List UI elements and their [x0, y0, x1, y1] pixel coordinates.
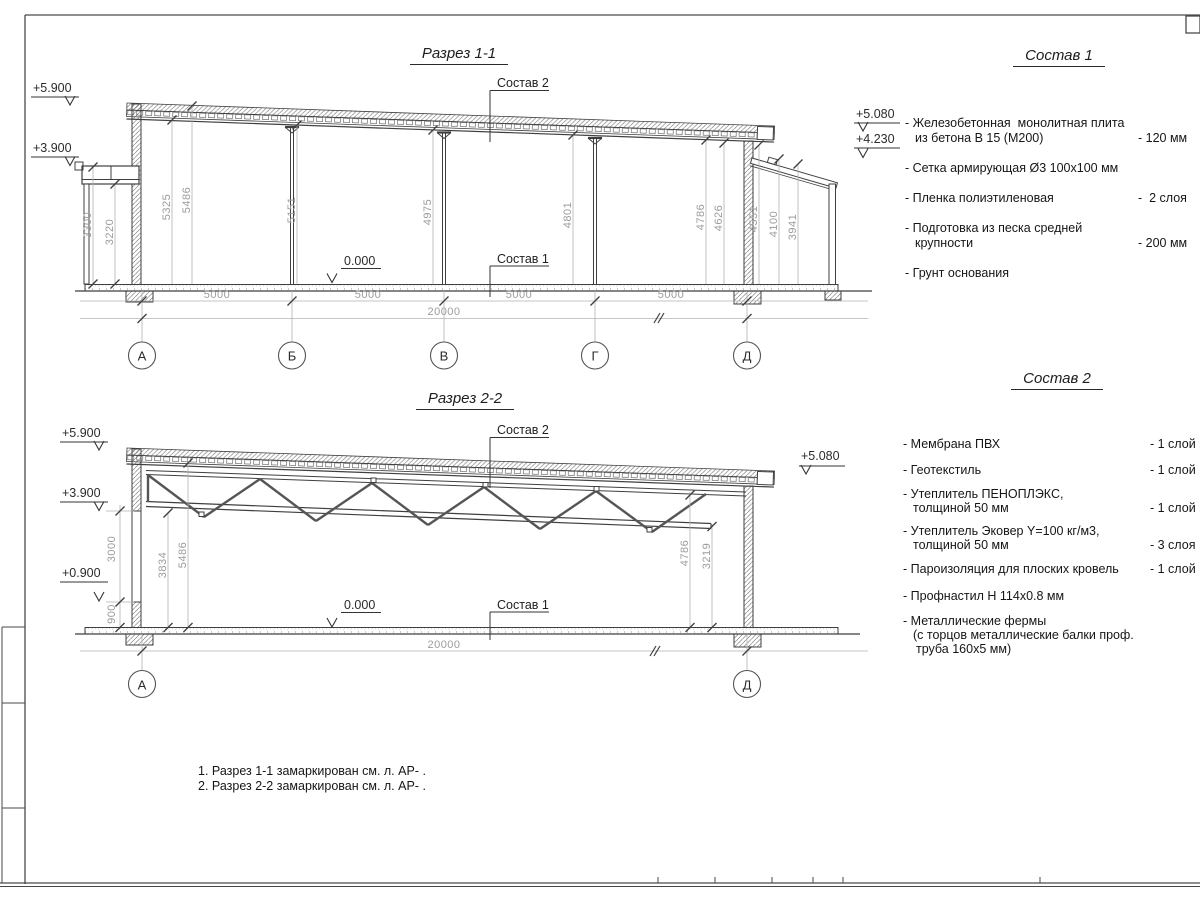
legend1-item-line: крупности [915, 236, 973, 250]
elevation-label: +3.900 [62, 486, 101, 500]
section1-structure [75, 103, 872, 304]
dim-label: 3220 [104, 219, 116, 245]
legend2-item-value: - 1 слой [1150, 562, 1196, 576]
callout-sostav1: Состав 1 [497, 598, 549, 612]
callout-sostav2: Состав 2 [497, 76, 549, 90]
legend2-item-line: толщиной 50 мм [913, 538, 1009, 552]
legend1-item-line: - Грунт основания [905, 266, 1009, 280]
dim-label-total: 20000 [427, 306, 460, 318]
section2-axis-bubbles [129, 671, 761, 698]
elevation-label: +5.900 [33, 81, 72, 95]
floor-level-label: 0.000 [344, 254, 375, 268]
axis-bubble-label: А [138, 677, 147, 692]
callout-sostav1: Состав 1 [497, 252, 549, 266]
legend2-item-line: - Утеплитель Эковер Y=100 кг/м3, [903, 524, 1099, 538]
dim-label: 5000 [204, 289, 230, 301]
dim-label: 4100 [768, 211, 780, 237]
section1-title: Разрез 1-1 [410, 45, 508, 65]
dim-label: 4626 [713, 205, 725, 231]
dim-label: 4975 [422, 199, 434, 225]
legend2-item-value: - 1 слой [1150, 463, 1196, 477]
legend2-item-line: - Утеплитель ПЕНОПЛЭКС, [903, 487, 1063, 501]
elevation-label: +4.230 [856, 132, 895, 146]
legend2-item-line: - Мембрана ПВХ [903, 437, 1000, 451]
legend2-item-value: - 1 слой [1150, 501, 1196, 515]
axis-bubble-label: Д [743, 349, 752, 364]
floor-level-label: 0.000 [344, 598, 375, 612]
elevation-label: +0.900 [62, 566, 101, 580]
dim-label: 5000 [658, 289, 684, 301]
legend1-item-line: - Железобетонная монолитная плита [905, 116, 1124, 130]
dim-label: 3941 [787, 214, 799, 240]
legend2-item-line: (с торцов металлические балки проф. [913, 628, 1134, 642]
legend1-item-line: - Подготовка из песка средней [905, 221, 1082, 235]
dim-label: 3219 [701, 543, 713, 569]
section2-dim-ticks [116, 459, 752, 656]
dim-label: 5486 [177, 542, 189, 568]
elevation-label: +5.080 [856, 107, 895, 121]
dim-label: 5000 [506, 289, 532, 301]
dim-label: 3834 [157, 552, 169, 578]
dim-label: 4551 [748, 206, 760, 232]
legend2-item-line: - Геотекстиль [903, 463, 981, 477]
section2-structure [75, 448, 860, 647]
elevation-label: +3.900 [33, 141, 72, 155]
legend2-item-value: - 1 слой [1150, 437, 1196, 451]
dim-label: 3000 [106, 536, 118, 562]
axis-bubble-label: Г [591, 349, 598, 364]
legend2-item-value: - 3 слоя [1150, 538, 1195, 552]
dim-label: 5151 [286, 197, 298, 223]
dim-label: 4786 [679, 540, 691, 566]
legend1-item-line: - Сетка армирующая Ø3 100х100 мм [905, 161, 1118, 175]
dim-label: 5486 [181, 187, 193, 213]
legend1-item-value: - 120 мм [1138, 131, 1187, 145]
legend1-item-line: - Пленка полиэтиленовая [905, 191, 1054, 205]
legend2-item-line: толщиной 50 мм [913, 501, 1009, 515]
dim-label: 900 [106, 604, 118, 624]
elevation-label: +5.080 [801, 449, 840, 463]
legend1-title: Состав 1 [1013, 47, 1105, 67]
legend2-title: Состав 2 [1011, 370, 1103, 390]
elevation-label: +5.900 [62, 426, 101, 440]
legend1-item-line: из бетона В 15 (М200) [915, 131, 1043, 145]
drawing-sheet: Разрез 1-1 Разрез 2-2 +5.900 +3.900 +5.0… [0, 0, 1200, 900]
dim-label: 4801 [562, 202, 574, 228]
legend2-item-line: - Профнастил Н 114х0.8 мм [903, 589, 1064, 603]
callout-sostav2: Состав 2 [497, 423, 549, 437]
dim-label-total: 20000 [427, 639, 460, 651]
note-line: 2. Разрез 2-2 замаркирован см. л. АР- . [198, 779, 426, 793]
dim-label: 3300 [82, 212, 94, 238]
dim-label: 4786 [695, 204, 707, 230]
legend2-item-line: - Пароизоляция для плоских кровель [903, 562, 1119, 576]
dim-label: 5000 [355, 289, 381, 301]
axis-bubble-label: В [440, 349, 449, 364]
axis-bubble-label: Б [288, 349, 297, 364]
note-line: 1. Разрез 1-1 замаркирован см. л. АР- . [198, 764, 426, 778]
legend2-item-line: труба 160х5 мм) [916, 642, 1011, 656]
dim-label: 5325 [161, 194, 173, 220]
section1-columns [285, 127, 602, 284]
legend1-item-value: - 2 слоя [1138, 191, 1187, 205]
section2-title: Разрез 2-2 [416, 390, 514, 410]
axis-bubble-label: А [138, 349, 147, 364]
legend1-item-value: - 200 мм [1138, 236, 1187, 250]
legend2-item-line: - Металлические фермы [903, 614, 1046, 628]
axis-bubble-label: Д [743, 677, 752, 692]
